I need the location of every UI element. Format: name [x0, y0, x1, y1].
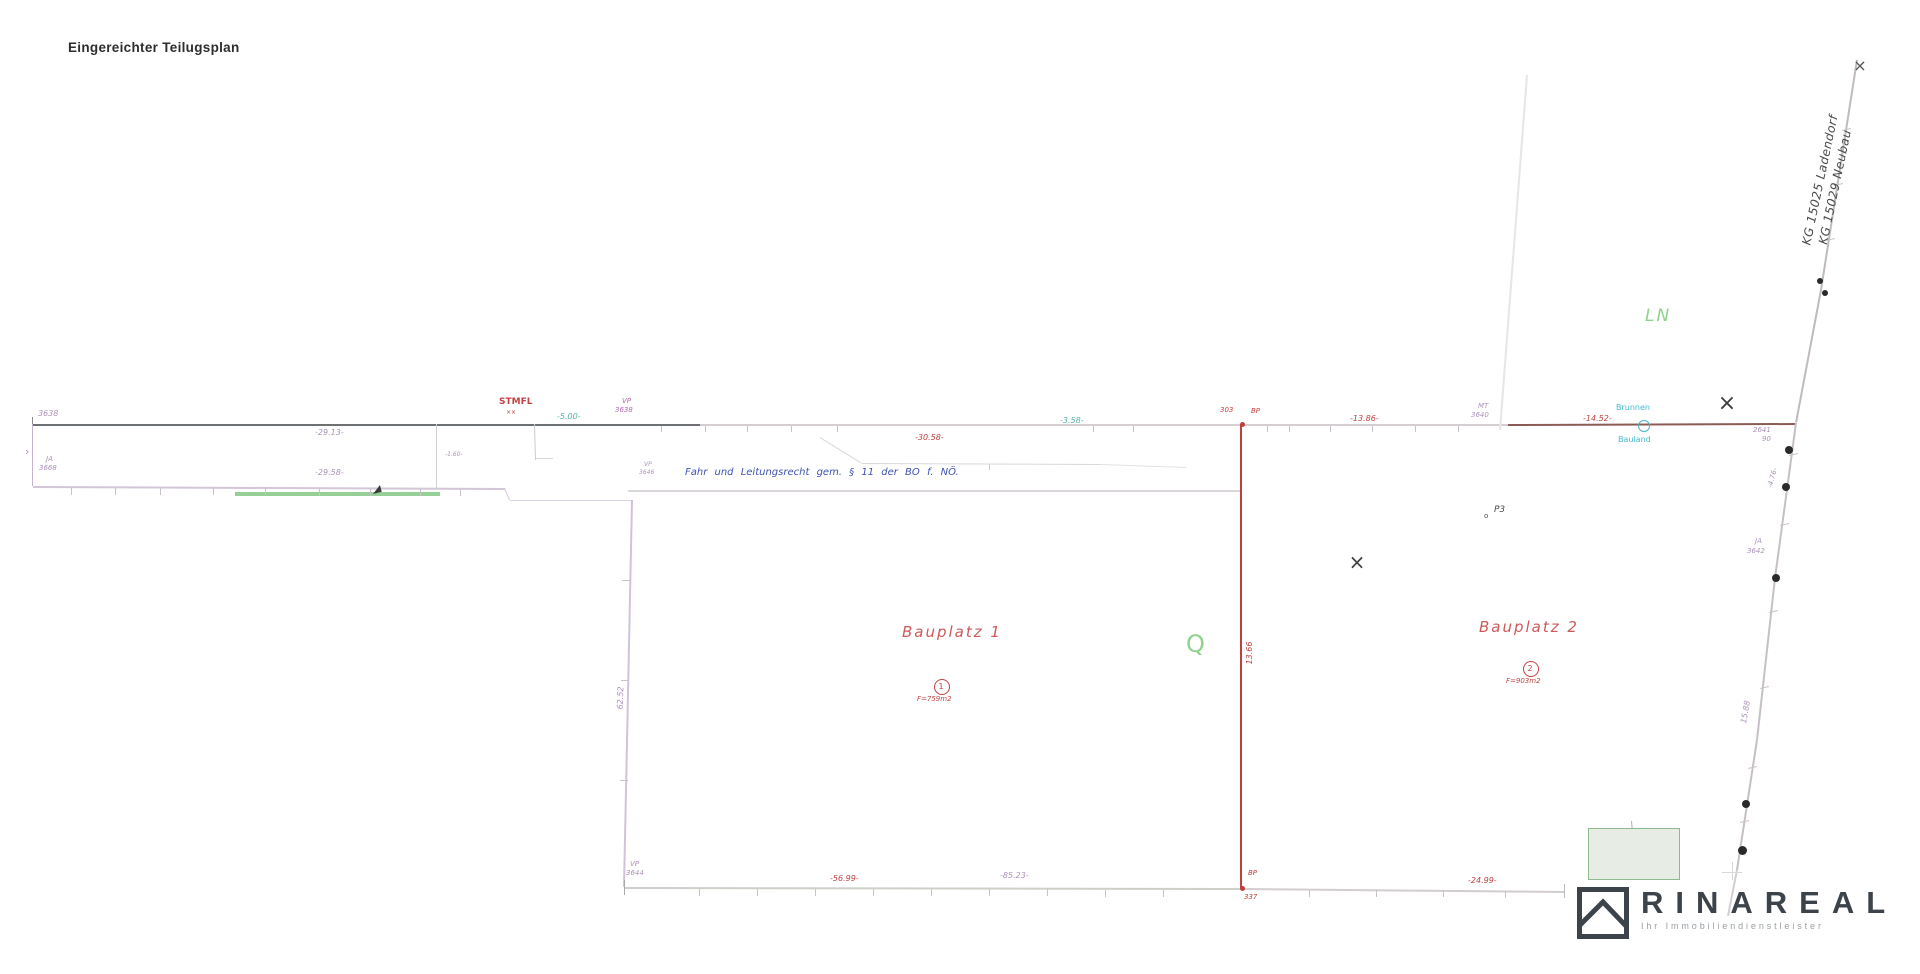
house-icon [1576, 886, 1630, 940]
dim-label: 62.52 [617, 686, 626, 709]
brunnen-label: Brunnen [1616, 404, 1650, 412]
ln-label: LN [1645, 308, 1671, 325]
tick [622, 580, 630, 581]
tick [1309, 890, 1310, 897]
parcel-1-label: Bauplatz 1 [902, 625, 1002, 640]
cross-mark: × [1718, 393, 1736, 415]
dim-label: 15.88 [1740, 700, 1752, 724]
tick [705, 426, 706, 432]
jog [504, 488, 510, 500]
cross-mark: × [1349, 552, 1366, 572]
point-label: VP [622, 398, 631, 405]
parcel-1-area: F=759m2 [917, 696, 952, 703]
boundary-bottom-west [625, 887, 1242, 890]
easement-south-edge [628, 490, 1242, 492]
dim-label: -13.86- [1350, 415, 1379, 423]
point-label: 337 [1244, 894, 1257, 901]
tick [460, 489, 461, 496]
west-edge-connector [32, 424, 33, 486]
tick [1376, 890, 1377, 897]
boundary-point [1782, 483, 1790, 491]
q-label: Q [1186, 632, 1205, 656]
point-label: 3640 [1471, 412, 1489, 419]
end-tick [624, 880, 625, 895]
point-label: MT [1478, 403, 1488, 410]
point-mark: ×× [506, 410, 516, 416]
tick [1415, 426, 1416, 432]
tick [747, 426, 748, 432]
point-label: 90 [1762, 436, 1771, 443]
rinareal-logo: RINAREAL Ihr Immobiliendienstleister [1576, 886, 1897, 940]
point-label: VP [644, 462, 652, 468]
tick [989, 889, 990, 896]
tick [620, 780, 628, 781]
parcel-1-number: 1 [938, 683, 943, 691]
point-label: BP [1248, 870, 1257, 877]
tick [791, 426, 792, 432]
kg-boundary [1795, 290, 1822, 423]
detail-line [534, 424, 536, 460]
tick [931, 889, 932, 896]
dim-label: -24.99- [1468, 877, 1497, 885]
kg-boundary [1756, 578, 1776, 740]
dim-label: -14.52- [1583, 415, 1612, 423]
dim-label: -56.99- [830, 875, 859, 883]
boundary-top-mid2 [1242, 424, 1508, 426]
second-boundary [33, 486, 505, 490]
dim-label: -29.58- [315, 469, 344, 477]
point-label: 3668 [39, 465, 57, 472]
point-label: STMFL [499, 398, 532, 407]
tick [1372, 426, 1373, 432]
parcel-2-area: F=903m2 [1506, 678, 1541, 685]
boundary-point [1785, 446, 1793, 454]
boundary-point [1772, 574, 1780, 582]
plan-title: Eingereichter Teilugsplan [68, 40, 240, 55]
point-label: JA [1755, 538, 1762, 545]
easement-detail [862, 463, 1100, 465]
logo-brand: RINAREAL [1641, 886, 1897, 920]
tick [699, 889, 700, 896]
tick [1505, 891, 1506, 898]
logo-tagline: Ihr Immobiliendienstleister [1641, 921, 1897, 931]
point-label: 2641 [1753, 427, 1771, 434]
detail-line [436, 424, 437, 489]
jog [510, 500, 633, 501]
dim-label: -85.23- [1000, 872, 1029, 880]
boundary-bottom-east [1242, 888, 1565, 893]
boundary-point [1822, 290, 1828, 296]
tick [319, 489, 320, 496]
point-label: 3638 [615, 407, 633, 414]
dim-label: -3.58- [1060, 417, 1084, 425]
point-label: 3642 [1747, 548, 1765, 555]
point-label: P3 [1494, 506, 1505, 515]
dim-label: -29.13- [315, 429, 344, 437]
point-label: 303 [1220, 407, 1233, 414]
point-label: VP [630, 861, 639, 868]
detail-line [1732, 862, 1733, 880]
point-label: JA [46, 456, 53, 463]
brunnen-symbol [1638, 420, 1650, 432]
dim-label: -4.76- [1767, 467, 1779, 489]
tick [160, 488, 161, 495]
point-mark: o [1484, 513, 1488, 520]
tick [1458, 426, 1459, 432]
easement-text: Fahr und Leitungsrecht gem. § 11 der BO … [685, 468, 959, 478]
detail-line [536, 458, 553, 459]
tick [1105, 890, 1106, 897]
tick [1267, 426, 1268, 432]
easement-detail [989, 464, 990, 470]
boundary-top-west [33, 424, 700, 426]
tick [661, 426, 662, 432]
tick [1443, 890, 1444, 897]
easement-detail [819, 437, 862, 464]
tick [370, 489, 371, 496]
parcel-2-label: Bauplatz 2 [1479, 620, 1579, 635]
old-boundary-faint [1500, 75, 1528, 430]
tick [1163, 890, 1164, 897]
cross-mark: × [1853, 58, 1866, 74]
boundary-point [1742, 800, 1750, 808]
dim-label: -5.00- [557, 413, 581, 421]
point-label: 3638 [38, 410, 58, 418]
parcel-2-number: 2 [1527, 665, 1532, 673]
tick [815, 889, 816, 896]
boundary-point [1817, 278, 1823, 284]
logo-text: RINAREAL Ihr Immobiliendienstleister [1641, 886, 1897, 931]
building-area [1588, 828, 1680, 880]
tick [1330, 426, 1331, 432]
boundary-point [1240, 422, 1245, 427]
point-label: 3644 [626, 870, 644, 877]
tick [265, 488, 266, 495]
tick [115, 488, 116, 495]
dim-label: -1.60- [445, 452, 463, 458]
tick [621, 680, 629, 681]
point-label: BP [1251, 408, 1260, 415]
tick [1093, 426, 1094, 432]
tick [213, 488, 214, 495]
boundary-top-mid [700, 424, 1242, 426]
tick [420, 489, 421, 496]
teilungsplan-canvas: Eingereichter Teilugsplan 3638-29.13-STM… [0, 0, 1920, 974]
easement-detail [1100, 464, 1186, 468]
point-label: 3646 [639, 470, 654, 476]
tick [837, 426, 838, 432]
bauland-label: Bauland [1618, 436, 1651, 444]
dim-label: 13.66 [1246, 642, 1254, 665]
tick [71, 488, 72, 495]
tick [757, 889, 758, 896]
tick [1133, 426, 1134, 432]
tick [873, 889, 874, 896]
boundary-point [1240, 886, 1245, 891]
dim-label: -30.58- [915, 434, 944, 442]
arrow-mark: › [25, 446, 29, 457]
end-tick [1564, 884, 1565, 898]
division-line [1240, 424, 1242, 888]
boundary-point [1738, 846, 1747, 855]
tick [1289, 426, 1290, 432]
tick [1047, 889, 1048, 896]
